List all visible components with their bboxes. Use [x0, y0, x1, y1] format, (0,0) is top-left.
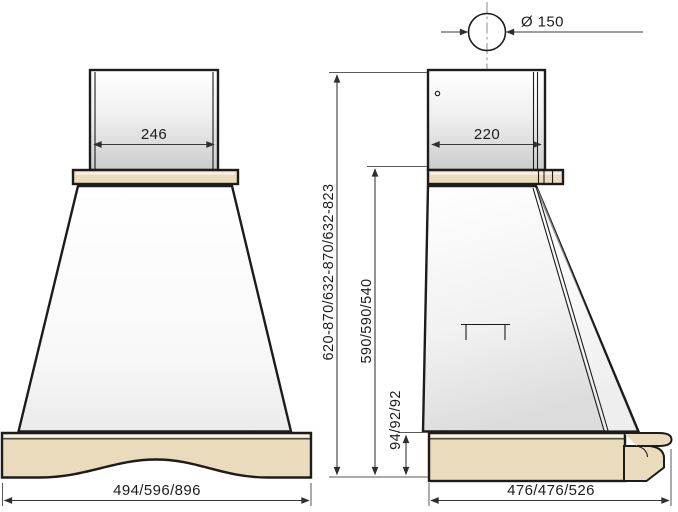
- corbel-cap: [624, 433, 672, 446]
- dim-plinth-height: 94/92/92: [388, 390, 406, 474]
- dim-hood-width: 494/596/896: [3, 482, 312, 506]
- dim-total-height-label: 620-870/632-870/632-823: [321, 184, 337, 361]
- side-view: Ø 150 220: [423, 2, 672, 506]
- front-canopy-body: [19, 186, 292, 432]
- dim-hood-width-label: 494/596/896: [113, 482, 201, 499]
- dim-chimney-depth-label: 220: [474, 126, 500, 143]
- dim-chimney-width-label: 246: [141, 126, 167, 143]
- side-chimney: [428, 70, 545, 170]
- hood-dimension-drawing: 246 494/596/896 Ø 150: [0, 0, 678, 512]
- drawing-canvas: 246 494/596/896 Ø 150: [0, 0, 678, 512]
- corbel-block: [624, 446, 664, 481]
- dim-hood-depth-label: 476/476/526: [507, 482, 595, 499]
- front-shelf-trim: [73, 170, 238, 184]
- dim-body-height: 590/590/540: [359, 169, 375, 475]
- front-view: 246 494/596/896: [2, 70, 311, 506]
- front-chimney: [90, 70, 218, 170]
- dim-body-height-label: 590/590/540: [359, 278, 375, 363]
- vertical-dimensions: 620-870/632-870/632-823 590/590/540 94/9…: [321, 73, 428, 478]
- front-plinth-arched: [2, 433, 311, 478]
- side-shelf-trim: [428, 170, 563, 184]
- dim-plinth-height-label: 94/92/92: [388, 390, 404, 450]
- dim-total-height: 620-870/632-870/632-823: [321, 75, 337, 475]
- side-plinth: [429, 433, 625, 481]
- dim-duct-diameter-label: Ø 150: [521, 14, 564, 31]
